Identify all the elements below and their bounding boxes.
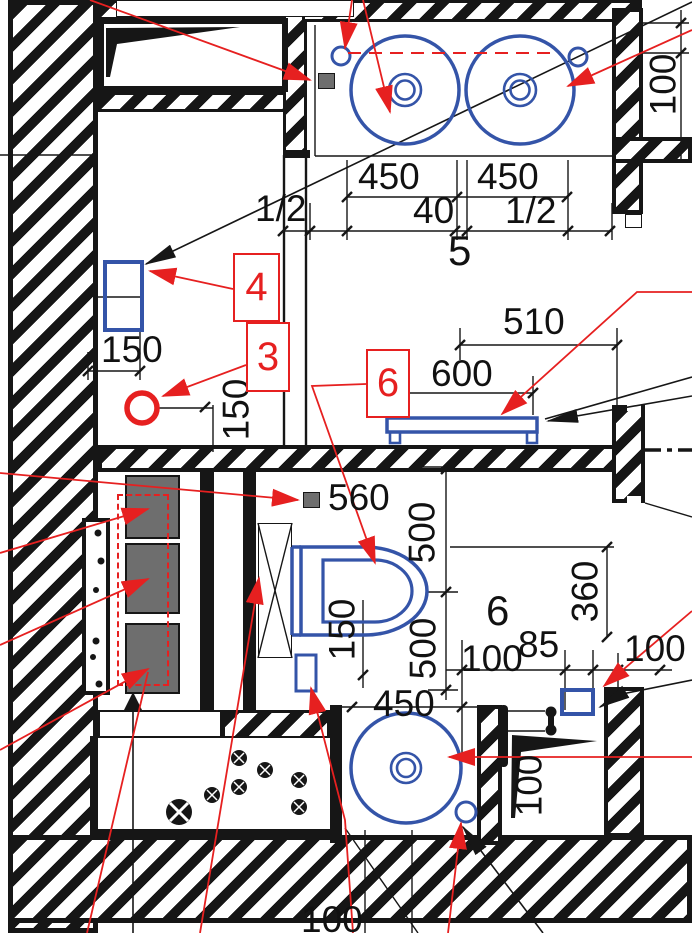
round-basin bbox=[351, 713, 461, 823]
dim-half-left: 1/2 bbox=[255, 190, 306, 227]
callout-box-4: 4 bbox=[233, 253, 280, 322]
callout-box-6: 6 bbox=[366, 349, 410, 418]
room-number-wc: 6 bbox=[486, 590, 509, 632]
floor-drain-item3 bbox=[127, 393, 157, 423]
linework-overlay bbox=[0, 0, 692, 933]
floor-plan-drawing: 450 450 40 1/2 1/2 5 100 150 150 510 600… bbox=[0, 0, 692, 933]
dim-sink-left: 450 bbox=[358, 158, 420, 195]
faucet-hole-left bbox=[332, 47, 350, 65]
dim-socket-560: 560 bbox=[328, 479, 390, 516]
dim-wc-360: 360 bbox=[567, 552, 604, 632]
wall-unit-item4 bbox=[105, 262, 142, 330]
red-leader-lines bbox=[0, 0, 692, 933]
callout-6-label: 6 bbox=[377, 361, 399, 406]
sanitary-fixtures bbox=[105, 36, 593, 823]
dim-wc-500-lower: 500 bbox=[405, 609, 442, 689]
callout-3-label: 3 bbox=[257, 335, 279, 380]
dim-wc-85: 85 bbox=[518, 626, 559, 663]
dim-half-right: 1/2 bbox=[505, 192, 556, 229]
dim-rail-600: 600 bbox=[431, 355, 493, 392]
door-strip-dots bbox=[90, 530, 105, 688]
dim-sink-gap: 40 bbox=[413, 192, 454, 229]
towel-rail bbox=[387, 418, 537, 432]
dimension-ticks bbox=[83, 18, 686, 873]
basin-faucet-hole bbox=[456, 802, 476, 822]
dim-bottom-100: 100 bbox=[301, 901, 363, 933]
dim-wall-right-100: 100 bbox=[645, 45, 682, 125]
niche-wedge-symbol bbox=[106, 27, 240, 77]
dim-wc-500-upper: 500 bbox=[404, 493, 441, 573]
dim-toilet-150: 150 bbox=[324, 590, 361, 670]
pipe-riser-symbols bbox=[166, 750, 307, 825]
dim-rail-510: 510 bbox=[503, 303, 565, 340]
drain-box bbox=[296, 655, 316, 691]
callout-4-label: 4 bbox=[245, 265, 267, 310]
dim-basin-450: 450 bbox=[373, 685, 435, 722]
wall-box-item bbox=[562, 690, 593, 714]
room-number-bathroom: 5 bbox=[448, 230, 471, 272]
dim-niche-100: 100 bbox=[511, 746, 548, 826]
dim-wc-100-right: 100 bbox=[624, 630, 686, 667]
dim-rect-150: 150 bbox=[101, 331, 163, 368]
dimension-lines bbox=[0, 10, 692, 933]
callout-box-3: 3 bbox=[246, 322, 290, 392]
dim-wc-100-left: 100 bbox=[461, 640, 523, 677]
